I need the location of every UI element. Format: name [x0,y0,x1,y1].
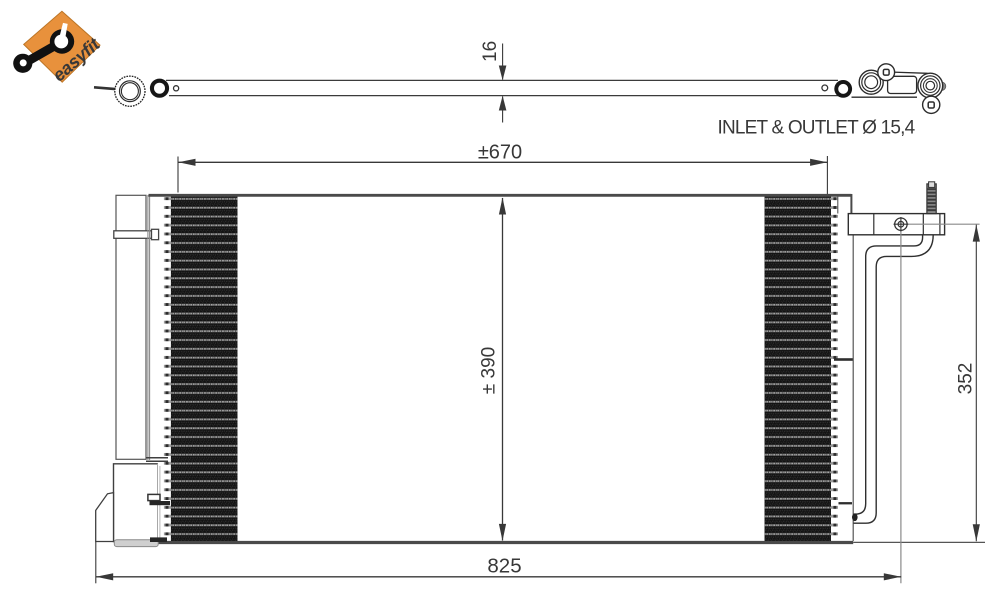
svg-text:16: 16 [480,41,501,62]
svg-text:825: 825 [487,555,521,578]
svg-text:±670: ±670 [478,141,522,163]
svg-text:INLET & OUTLET Ø 15,4: INLET & OUTLET Ø 15,4 [718,118,916,139]
svg-text:± 390: ± 390 [479,347,500,394]
svg-text:352: 352 [956,363,977,395]
